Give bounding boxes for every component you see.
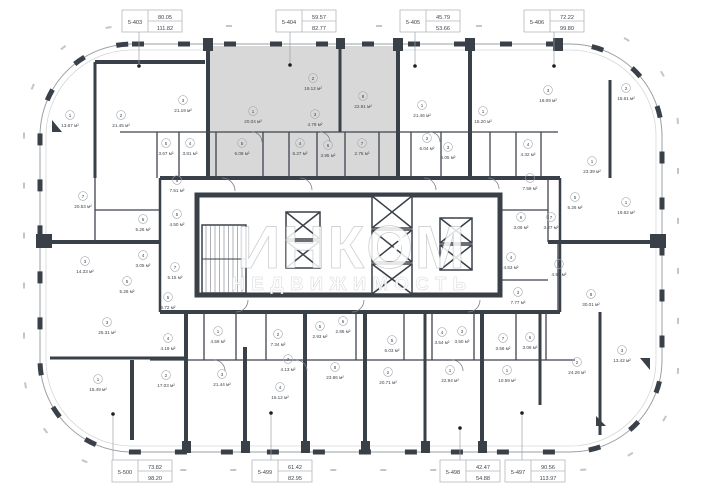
apartment-area-living: 72.22 xyxy=(560,15,574,21)
room-area: 3.06 м² xyxy=(523,345,538,350)
room-area: 15.61 м² xyxy=(617,96,635,101)
room-area: 3.54 м² xyxy=(435,340,450,345)
room-area: 30.01 м² xyxy=(582,302,600,307)
apartment-id: 5-404 xyxy=(282,20,296,26)
callout-anchor-dot xyxy=(458,426,462,430)
apartment-id: 5-500 xyxy=(118,470,132,476)
room-area: 3.56 м² xyxy=(496,346,511,351)
room-area: 7.59 м² xyxy=(523,186,538,191)
room-area: 5.26 м² xyxy=(568,205,583,210)
floor-plan-canvas: 113.67 м²221.45 м²321.19 м²53.67 м²43.81… xyxy=(0,0,701,496)
callout-anchor-dot xyxy=(288,63,292,67)
room-area: 6.05 м² xyxy=(441,155,456,160)
apartment-area-living: 59.57 xyxy=(312,15,326,21)
watermark-title: ИНКОМ xyxy=(237,214,467,281)
room-area: 3.67 м² xyxy=(159,151,174,156)
room-area: 21.19 м² xyxy=(174,108,192,113)
watermark: ИНКОМ НЕДВИЖИМОСТЬ xyxy=(232,214,473,294)
room-area: 22.94 м² xyxy=(441,378,459,383)
apartment-area-total: 99.80 xyxy=(560,26,574,32)
room-area: 23.39 м² xyxy=(583,169,601,174)
room-area: 18.09 м² xyxy=(539,98,557,103)
room-area: 20.71 м² xyxy=(379,380,397,385)
room-area: 5.28 м² xyxy=(120,289,135,294)
room-area: 4.53 м² xyxy=(504,265,519,270)
callout-anchor-dot xyxy=(520,411,524,415)
apartment-area-total: 82.77 xyxy=(312,26,326,32)
room-area: 4.13 м² xyxy=(281,367,296,372)
apartment-area-living: 42.47 xyxy=(476,465,490,471)
apartment-area-total: 111.82 xyxy=(157,26,173,32)
apartment-area-total: 82.95 xyxy=(288,476,302,482)
room-area: 15.49 м² xyxy=(89,387,107,392)
room-area: 16.12 м² xyxy=(271,395,289,400)
room-area: 2.93 м² xyxy=(313,334,328,339)
apartment-area-living: 73.82 xyxy=(148,465,162,471)
room-area: 6.72 м² xyxy=(161,305,176,310)
apartment-area-total: 54.88 xyxy=(476,476,490,482)
room-area: 21.44 м² xyxy=(213,382,231,387)
room-area: 14.33 м² xyxy=(76,269,94,274)
watermark-subtitle: НЕДВИЖИМОСТЬ xyxy=(232,273,473,294)
room-area: 4.32 м² xyxy=(521,152,536,157)
apartment-area-living: 90.56 xyxy=(541,465,555,471)
room-area: 17.03 м² xyxy=(157,383,175,388)
room-area: 2.75 м² xyxy=(355,151,370,156)
room-area: 5.26 м² xyxy=(136,227,151,232)
room-area: 3.05 м² xyxy=(136,263,151,268)
apartment-id: 5-403 xyxy=(128,20,142,26)
floor-plan-page: 113.67 м²221.45 м²321.19 м²53.67 м²43.81… xyxy=(0,0,701,496)
callout-anchor-dot xyxy=(552,64,556,68)
callout-anchor-dot xyxy=(269,411,273,415)
room-area: 20.53 м² xyxy=(74,204,92,209)
room-area: 6.08 м² xyxy=(235,151,250,156)
room-area: 24.26 м² xyxy=(568,370,586,375)
room-area: 7.34 м² xyxy=(271,342,286,347)
room-area: 23.86 м² xyxy=(326,375,344,380)
room-area: 15.20 м² xyxy=(474,119,492,124)
room-area: 6.03 м² xyxy=(385,348,400,353)
callout-anchor-dot xyxy=(111,412,115,416)
apartment-area-total: 98.20 xyxy=(148,476,162,482)
room-area: 21.46 м² xyxy=(413,113,431,118)
apartment-area-total: 53.66 xyxy=(436,26,450,32)
room-area: 6.27 м² xyxy=(293,151,308,156)
highlighted-apartment-area[interactable] xyxy=(209,46,397,177)
room-area: 3.95 м² xyxy=(321,153,336,158)
room-area: 20.04 м² xyxy=(244,119,262,124)
room-area: 10.59 м² xyxy=(498,378,516,383)
room-area: 3.50 м² xyxy=(455,339,470,344)
room-area: 25.31 м² xyxy=(98,330,116,335)
room-area: 19.62 м² xyxy=(617,210,635,215)
callout-anchor-dot xyxy=(137,64,141,68)
apartment-id: 5-406 xyxy=(530,20,544,26)
room-area: 7.51 м² xyxy=(170,188,185,193)
room-area: 4.53 м² xyxy=(552,272,567,277)
callout-anchor-dot xyxy=(413,64,417,68)
room-area: 4.59 м² xyxy=(211,339,226,344)
apartment-area-living: 61.42 xyxy=(288,465,302,471)
room-area: 4.19 м² xyxy=(161,346,176,351)
room-area: 4.79 м² xyxy=(308,122,323,127)
apartment-area-total: 113.97 xyxy=(540,476,557,482)
apartment-id: 5-499 xyxy=(258,470,272,476)
room-area: 6.04 м² xyxy=(420,146,435,151)
apartment-id: 5-497 xyxy=(511,470,525,476)
room-area: 19.12 м² xyxy=(304,86,322,91)
apartment-area-living: 45.79 xyxy=(436,15,450,21)
room-area: 3.06 м² xyxy=(514,225,529,230)
room-area: 21.45 м² xyxy=(112,123,130,128)
apartment-id: 5-498 xyxy=(446,470,460,476)
room-area: 13.42 м² xyxy=(613,358,631,363)
room-area: 3.81 м² xyxy=(183,151,198,156)
room-area: 4.50 м² xyxy=(170,222,185,227)
room-area: 7.77 м² xyxy=(511,300,526,305)
room-area: 3.27 м² xyxy=(544,225,559,230)
apartment-id: 5-405 xyxy=(406,20,420,26)
room-area: 22.91 м² xyxy=(354,104,372,109)
room-area: 13.67 м² xyxy=(61,123,79,128)
apartment-area-living: 80.05 xyxy=(158,15,172,21)
room-area: 5.15 м² xyxy=(168,275,183,280)
room-area: 2.86 м² xyxy=(336,329,351,334)
